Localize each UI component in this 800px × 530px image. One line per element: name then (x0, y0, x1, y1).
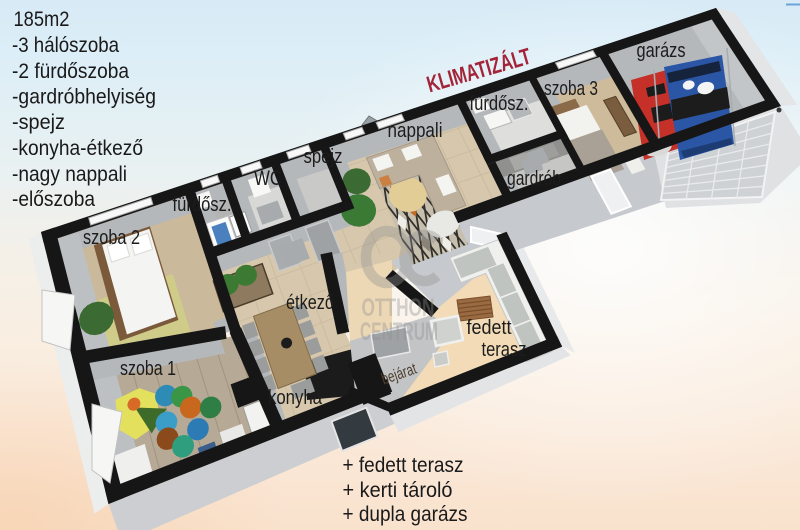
svg-text:+ fedett terasz: + fedett terasz (343, 453, 464, 477)
svg-text:CENTRUM: CENTRUM (360, 318, 438, 346)
svg-text:+ dupla garázs: + dupla garázs (343, 502, 468, 526)
svg-text:szoba 3: szoba 3 (544, 78, 598, 100)
svg-text:-előszoba: -előszoba (12, 188, 95, 211)
svg-text:-2 fürdőszoba: -2 fürdőszoba (12, 60, 129, 83)
svg-text:fürdősz.: fürdősz. (470, 93, 529, 115)
svg-text:fedett: fedett (467, 317, 512, 339)
svg-text:185m2: 185m2 (14, 8, 70, 31)
svg-text:-3 hálószoba: -3 hálószoba (12, 34, 119, 57)
svg-text:garázs: garázs (637, 40, 686, 62)
svg-text:terasz: terasz (482, 339, 527, 361)
svg-text:-nagy nappali: -nagy nappali (12, 163, 127, 186)
svg-text:gardrób: gardrób (507, 168, 561, 190)
svg-text:szoba 2: szoba 2 (83, 227, 140, 249)
svg-text:-konyha-étkező: -konyha-étkező (12, 137, 143, 160)
svg-text:-gardróbhelyiség: -gardróbhelyiség (12, 86, 156, 109)
svg-text:szoba 1: szoba 1 (120, 358, 176, 380)
svg-text:étkező: étkező (286, 292, 334, 314)
svg-text:fürdősz.: fürdősz. (173, 194, 232, 216)
svg-text:-spejz: -spejz (12, 111, 65, 134)
svg-text:+ kerti tároló: + kerti tároló (343, 478, 453, 502)
svg-text:nappali: nappali (388, 120, 443, 142)
svg-text:spejz: spejz (304, 146, 343, 168)
svg-text:konyha: konyha (268, 387, 323, 409)
svg-text:WC: WC (254, 167, 282, 190)
